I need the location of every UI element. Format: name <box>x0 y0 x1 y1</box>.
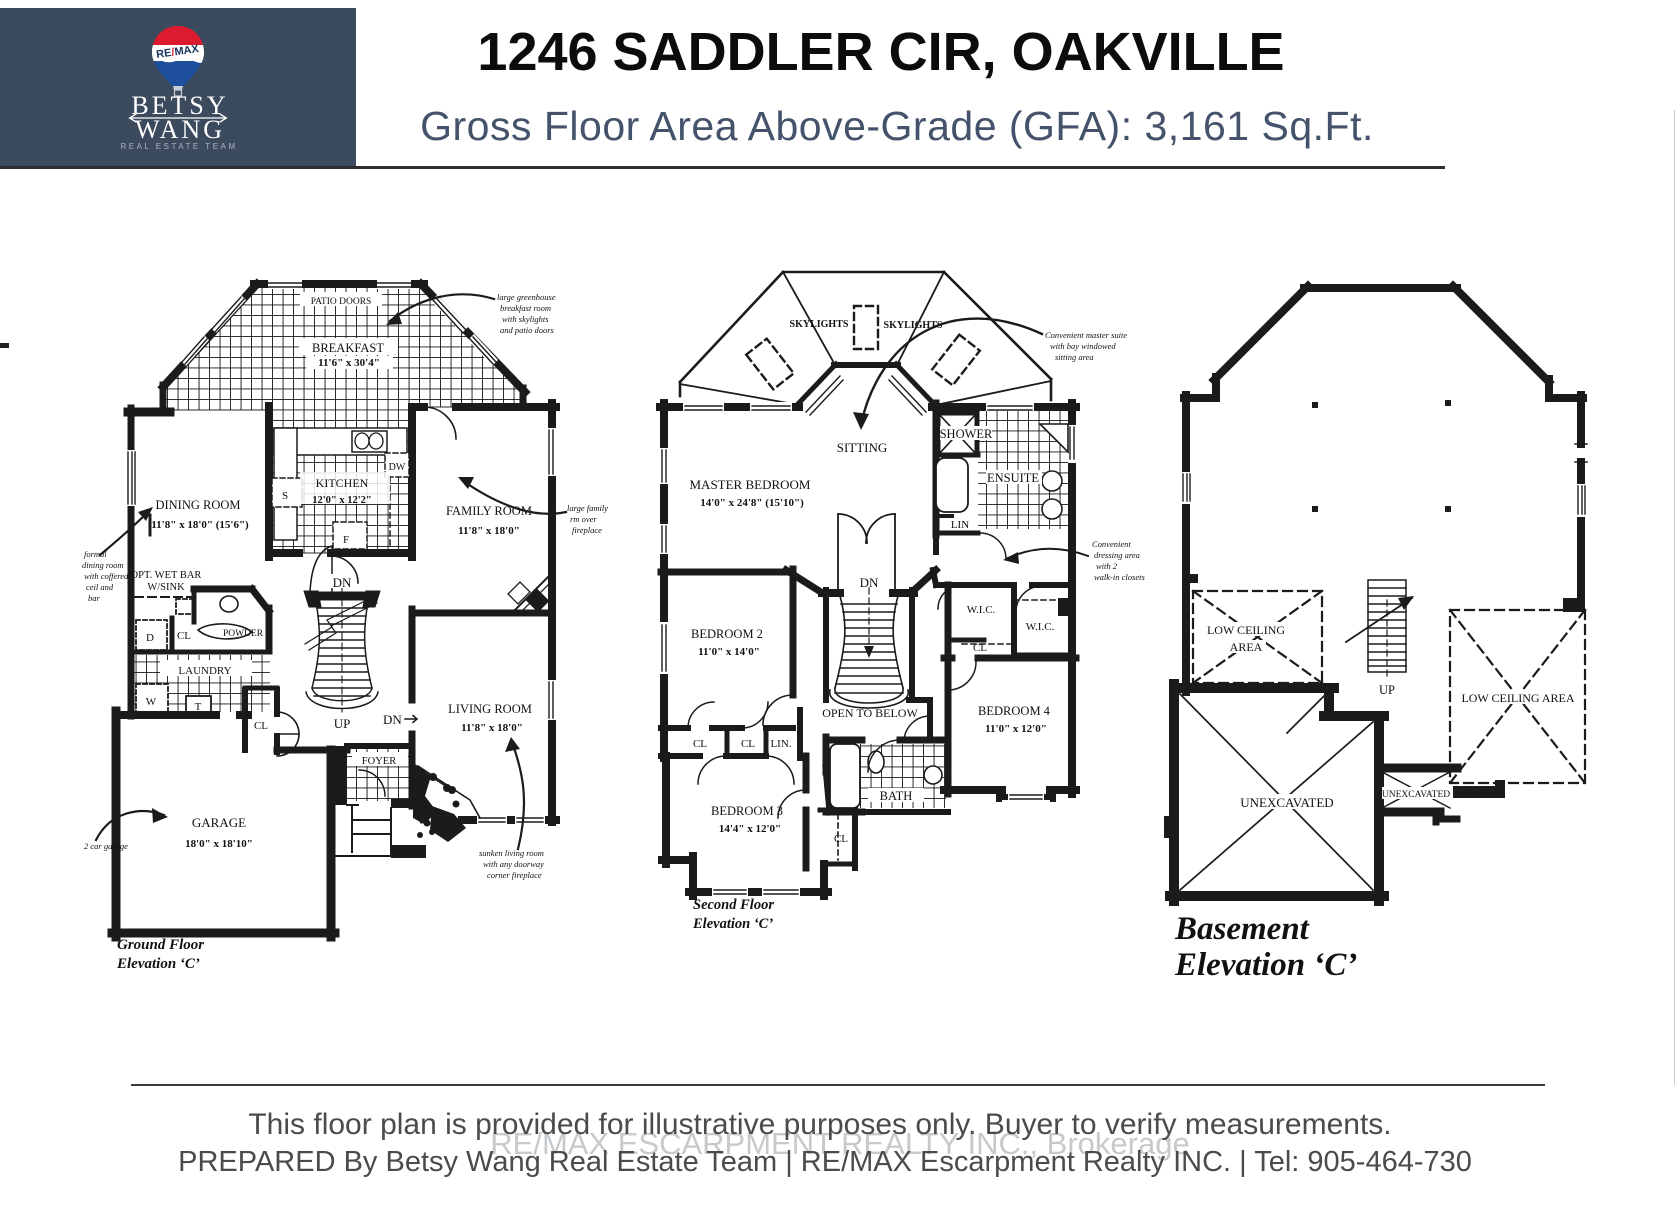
svg-text:POWDER: POWDER <box>223 629 264 639</box>
svg-text:bar: bar <box>88 593 101 603</box>
svg-text:F: F <box>343 534 349 546</box>
svg-text:UNEXCAVATED: UNEXCAVATED <box>1240 795 1333 810</box>
svg-text:18'0" x 18'10": 18'0" x 18'10" <box>185 838 253 850</box>
svg-text:S: S <box>282 490 288 502</box>
svg-text:OPT. WET BAR: OPT. WET BAR <box>131 570 202 581</box>
svg-text:W/SINK: W/SINK <box>147 582 185 593</box>
svg-text:CL: CL <box>177 630 191 642</box>
svg-text:CL: CL <box>741 738 755 750</box>
svg-text:Convenient master suite: Convenient master suite <box>1045 330 1127 340</box>
svg-text:11'6" x 30'4": 11'6" x 30'4" <box>318 357 380 369</box>
svg-text:and patio doors: and patio doors <box>500 325 555 335</box>
svg-text:dining room: dining room <box>82 560 123 570</box>
svg-text:LOW CEILING: LOW CEILING <box>1207 623 1285 637</box>
svg-text:OPEN TO BELOW: OPEN TO BELOW <box>822 706 918 720</box>
svg-text:UNEXCAVATED: UNEXCAVATED <box>1382 790 1450 800</box>
svg-text:Elevation ‘C’: Elevation ‘C’ <box>692 916 773 932</box>
svg-text:UP: UP <box>1379 683 1395 697</box>
svg-text:DN: DN <box>333 575 352 590</box>
svg-text:BEDROOM 4: BEDROOM 4 <box>978 704 1051 718</box>
svg-text:BEDROOM 3: BEDROOM 3 <box>711 804 783 818</box>
svg-text:SHOWER: SHOWER <box>940 427 993 441</box>
svg-text:LAUNDRY: LAUNDRY <box>178 665 231 677</box>
svg-text:11'8" x 18'0" (15'6"): 11'8" x 18'0" (15'6") <box>151 519 249 531</box>
svg-text:ENSUITE: ENSUITE <box>987 471 1039 485</box>
svg-text:Elevation ‘C’: Elevation ‘C’ <box>1174 947 1357 983</box>
svg-text:LOW CEILING AREA: LOW CEILING AREA <box>1461 691 1574 705</box>
svg-text:Elevation ‘C’: Elevation ‘C’ <box>116 956 200 972</box>
svg-text:large greenhouse: large greenhouse <box>497 292 556 302</box>
svg-text:Second Floor: Second Floor <box>693 897 774 913</box>
svg-text:rm over: rm over <box>570 514 597 524</box>
svg-text:BATH: BATH <box>880 789 913 803</box>
svg-text:DN: DN <box>383 712 402 727</box>
svg-text:CL: CL <box>834 833 848 845</box>
svg-text:14'4" x 12'0": 14'4" x 12'0" <box>719 823 781 835</box>
svg-text:sunken living room: sunken living room <box>479 848 544 858</box>
svg-text:DW: DW <box>389 462 406 473</box>
svg-text:KITCHEN: KITCHEN <box>316 476 369 490</box>
svg-text:D: D <box>146 632 154 644</box>
svg-text:ceil and: ceil and <box>86 582 114 592</box>
svg-text:11'8" x 18'0": 11'8" x 18'0" <box>461 722 523 734</box>
svg-text:SITTING: SITTING <box>837 440 888 455</box>
svg-text:SKYLIGHTS: SKYLIGHTS <box>884 320 943 331</box>
svg-text:Basement: Basement <box>1174 911 1310 947</box>
svg-text:BEDROOM 2: BEDROOM 2 <box>691 627 763 641</box>
svg-text:11'0" x 12'0": 11'0" x 12'0" <box>985 723 1047 735</box>
svg-text:LIN.: LIN. <box>770 738 791 750</box>
svg-text:walk-in closets: walk-in closets <box>1094 572 1145 582</box>
svg-text:MASTER BEDROOM: MASTER BEDROOM <box>690 477 811 492</box>
svg-text:UP: UP <box>334 716 351 731</box>
svg-text:Convenient: Convenient <box>1092 539 1131 549</box>
svg-text:corner fireplace: corner fireplace <box>487 870 542 880</box>
svg-text:AREA: AREA <box>1230 640 1263 654</box>
svg-text:breakfast room: breakfast room <box>500 303 551 313</box>
svg-text:DN: DN <box>860 575 879 590</box>
svg-text:2 car garage: 2 car garage <box>84 841 128 851</box>
svg-text:CL: CL <box>693 738 707 750</box>
svg-text:dressing area: dressing area <box>1094 550 1140 560</box>
svg-text:with any doorway: with any doorway <box>483 859 544 869</box>
svg-text:12'0" x 12'2": 12'0" x 12'2" <box>312 495 372 506</box>
svg-text:BREAKFAST: BREAKFAST <box>312 341 384 355</box>
svg-text:Ground Floor: Ground Floor <box>117 937 204 953</box>
svg-text:14'0" x 24'8" (15'10"): 14'0" x 24'8" (15'10") <box>700 497 804 509</box>
svg-text:W: W <box>146 696 157 708</box>
svg-text:FAMILY ROOM: FAMILY ROOM <box>446 504 532 518</box>
svg-text:with 2: with 2 <box>1096 561 1118 571</box>
svg-text:CL: CL <box>254 720 268 732</box>
svg-text:DINING ROOM: DINING ROOM <box>155 498 240 512</box>
svg-text:LIN: LIN <box>951 519 969 531</box>
svg-text:SKYLIGHTS: SKYLIGHTS <box>790 319 849 330</box>
svg-text:fireplace: fireplace <box>572 525 602 535</box>
svg-text:11'8" x 18'0": 11'8" x 18'0" <box>458 525 520 537</box>
svg-text:GARAGE: GARAGE <box>192 815 246 830</box>
svg-text:11'0" x 14'0": 11'0" x 14'0" <box>698 646 760 658</box>
svg-text:sitting area: sitting area <box>1055 352 1094 362</box>
svg-text:W.I.C.: W.I.C. <box>1026 621 1055 633</box>
svg-text:large family: large family <box>567 503 608 513</box>
svg-text:FOYER: FOYER <box>362 756 396 767</box>
svg-text:with coffered: with coffered <box>84 571 129 581</box>
svg-text:W.I.C.: W.I.C. <box>967 604 996 616</box>
svg-text:with bay windowed: with bay windowed <box>1050 341 1116 351</box>
svg-text:with skylights: with skylights <box>502 314 549 324</box>
svg-text:LIVING ROOM: LIVING ROOM <box>448 702 532 716</box>
svg-text:PATIO DOORS: PATIO DOORS <box>311 297 372 307</box>
